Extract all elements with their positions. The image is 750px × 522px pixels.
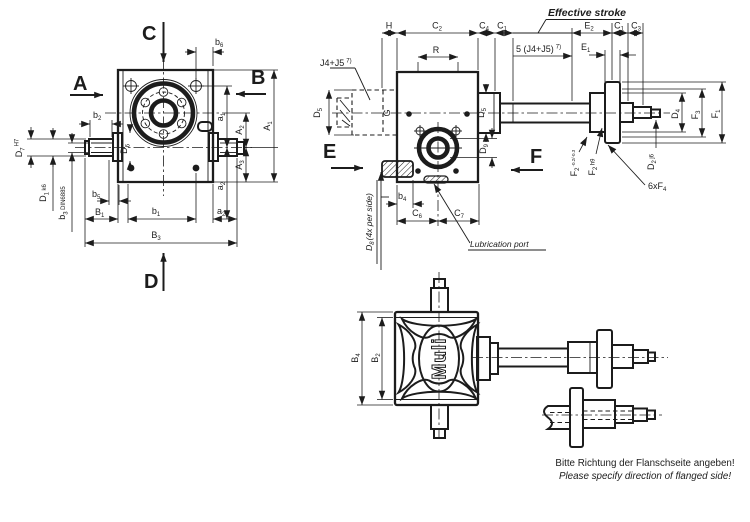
svg-text:C7: C7: [454, 208, 465, 220]
svg-text:b5: b5: [92, 189, 101, 201]
dim-C4: C4: [479, 21, 490, 33]
svg-text:R: R: [433, 45, 440, 55]
dim-C1-right: C1: [614, 21, 625, 33]
svg-text:a1: a1: [215, 112, 227, 121]
stub-top: [431, 279, 448, 312]
dim-C7: C7: [438, 184, 479, 225]
svg-text:B4: B4: [350, 353, 362, 363]
dim-F2-tol: F2-0.2/-0.3: [569, 137, 587, 176]
flange-disc: [605, 82, 620, 143]
dim-R: R: [418, 45, 458, 72]
svg-text:A3: A3: [234, 160, 246, 170]
alt-flange-option: [544, 388, 655, 447]
svg-text:Lubrication port: Lubrication port: [470, 239, 529, 249]
svg-text:F2-0.2/-0.3: F2-0.2/-0.3: [569, 149, 581, 176]
stub-bottom: [431, 405, 448, 438]
view-letter-d: D: [144, 271, 158, 293]
housing-ribs: Muli: [399, 319, 478, 399]
dim-G: G: [382, 109, 392, 116]
holes-note: D8(4x per side): [364, 172, 389, 270]
svg-text:5 (J4+J5)7): 5 (J4+J5)7): [516, 44, 561, 54]
corner-hole-top-left: [123, 78, 139, 94]
brand-logo: Muli: [430, 338, 451, 380]
corner-hole-bottom-left: [128, 165, 135, 172]
corner-hole-bottom-right: [193, 165, 200, 172]
svg-text:b6: b6: [215, 37, 224, 49]
dim-B2: B2: [370, 318, 393, 400]
dim-D5-left: D5: [312, 90, 354, 135]
svg-text:B1: B1: [95, 207, 105, 219]
footer-notes: Bitte Richtung der Flanschseite angeben!…: [555, 458, 734, 482]
svg-text:b3DIN6885: b3DIN6885: [57, 186, 70, 220]
svg-text:E1: E1: [581, 42, 591, 54]
svg-text:6xF4: 6xF4: [648, 181, 667, 193]
svg-text:a2: a2: [217, 206, 226, 218]
svg-text:F1: F1: [710, 109, 722, 119]
lubrication-port-label: Lubrication port: [434, 184, 546, 250]
dim-C6: C6: [397, 208, 438, 221]
svg-text:Effective stroke: Effective stroke: [548, 7, 626, 19]
svg-text:b4: b4: [398, 191, 407, 203]
dim-C2: C2: [432, 21, 443, 33]
bottom-view: Muli B4 B2: [350, 272, 668, 447]
dim-H: H: [386, 21, 393, 31]
side-plug: [198, 122, 212, 131]
svg-text:b2: b2: [93, 110, 102, 122]
svg-text:D1k6: D1k6: [38, 184, 51, 202]
dim-E2: E2: [584, 21, 594, 33]
svg-text:J4+J57): J4+J57): [320, 58, 352, 68]
svg-text:C6: C6: [412, 208, 423, 220]
corner-hole-top-right: [188, 78, 204, 94]
svg-text:D9: D9: [478, 143, 490, 154]
svg-text:a2: a2: [215, 181, 227, 190]
svg-text:F2h9: F2h9: [587, 158, 599, 176]
dim-D2: D2j6: [646, 120, 658, 170]
lubrication-port: [424, 176, 448, 183]
svg-text:D4: D4: [670, 108, 682, 119]
view-letter-c: C: [142, 23, 156, 45]
screw-assembly: [478, 82, 660, 143]
screw-assembly-bottom: [477, 330, 655, 388]
view-letter-f: F: [530, 146, 542, 168]
label-6xF4: 6xF4: [608, 145, 667, 193]
svg-text:F3: F3: [690, 110, 702, 120]
svg-text:A2: A2: [234, 125, 246, 135]
view-letter-a: A: [73, 73, 87, 95]
stroke-formula-label: 5 (J4+J5)7): [513, 44, 572, 56]
dim-C3: C3: [631, 21, 642, 33]
dim-b1: b1: [128, 173, 196, 223]
svg-text:D2j6: D2j6: [646, 153, 658, 170]
dim-D4: D4: [622, 93, 686, 132]
svg-text:B3: B3: [151, 230, 161, 242]
dim-b6: b6: [185, 37, 224, 79]
effective-stroke-label: Effective stroke: [538, 7, 626, 33]
dim-d1: D1k6: [38, 128, 53, 211]
threaded-stub: [382, 161, 413, 177]
label-j4-j5: J4+J57): [320, 58, 370, 100]
front-view: C A B D b6 b2 D7H7: [14, 22, 278, 293]
svg-text:D5: D5: [312, 107, 324, 118]
input-shaft-right: [209, 133, 244, 161]
note-english: Please specify direction of flanged side…: [559, 471, 731, 482]
dim-B3: B3: [85, 230, 237, 243]
svg-text:b1: b1: [152, 206, 161, 218]
view-letter-e: E: [323, 141, 336, 163]
dim-C1-top: C1: [497, 21, 508, 33]
dim-a2-bottom: a2: [213, 158, 237, 247]
dim-B1: B1: [85, 158, 118, 247]
dim-F2-h9: F2h9: [587, 128, 602, 176]
side-view: G D5 J4+J57): [312, 7, 726, 270]
svg-text:A1: A1: [262, 121, 274, 131]
svg-text:D7H7: D7H7: [14, 138, 27, 157]
gearbox-dimension-drawing: C A B D b6 b2 D7H7: [0, 0, 750, 522]
note-german: Bitte Richtung der Flanschseite angeben!: [555, 458, 734, 469]
svg-text:B2: B2: [370, 353, 382, 363]
svg-text:D6: D6: [119, 143, 132, 154]
input-shaft-left: [85, 133, 122, 161]
svg-text:D8(4x per side): D8(4x per side): [364, 193, 376, 251]
technical-drawing-page: C A B D b6 b2 D7H7: [0, 0, 750, 522]
